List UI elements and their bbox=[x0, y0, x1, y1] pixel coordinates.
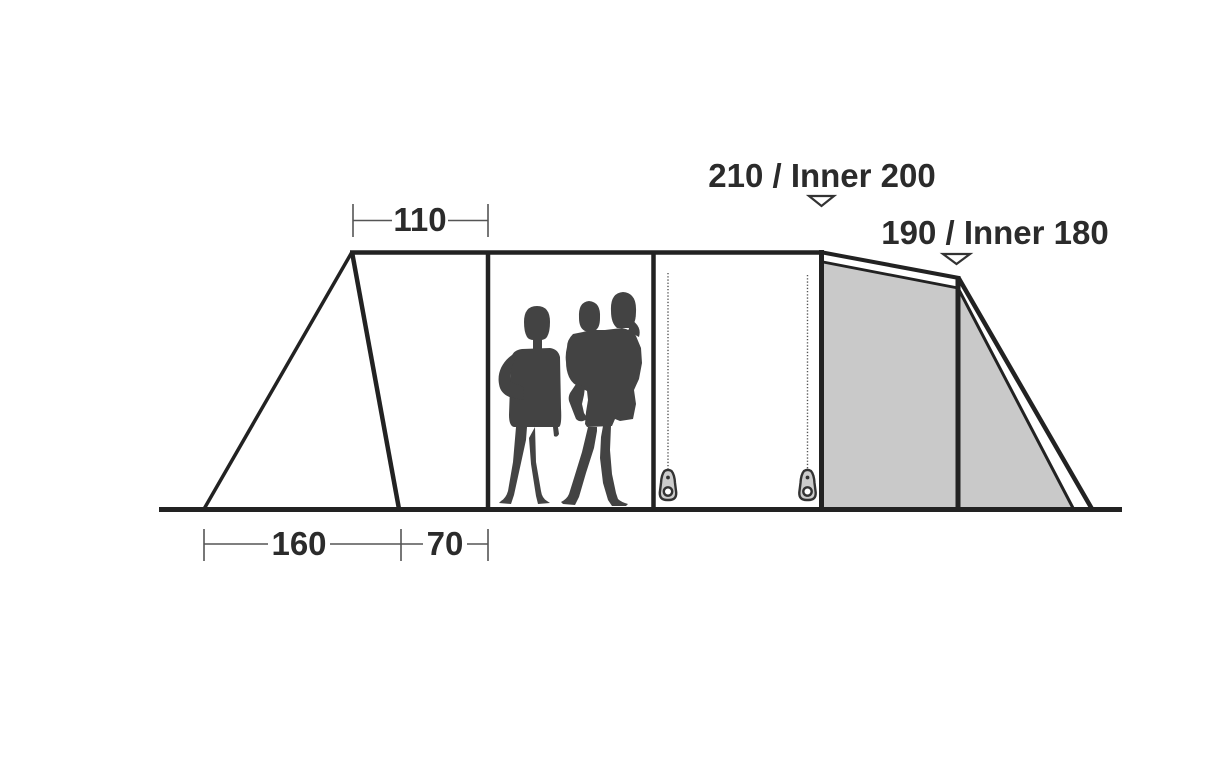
svg-text:110: 110 bbox=[393, 201, 446, 238]
svg-text:70: 70 bbox=[427, 525, 464, 562]
svg-text:160: 160 bbox=[271, 525, 326, 562]
svg-text:190 / Inner 180: 190 / Inner 180 bbox=[881, 214, 1108, 251]
svg-text:210 / Inner 200: 210 / Inner 200 bbox=[708, 157, 935, 194]
